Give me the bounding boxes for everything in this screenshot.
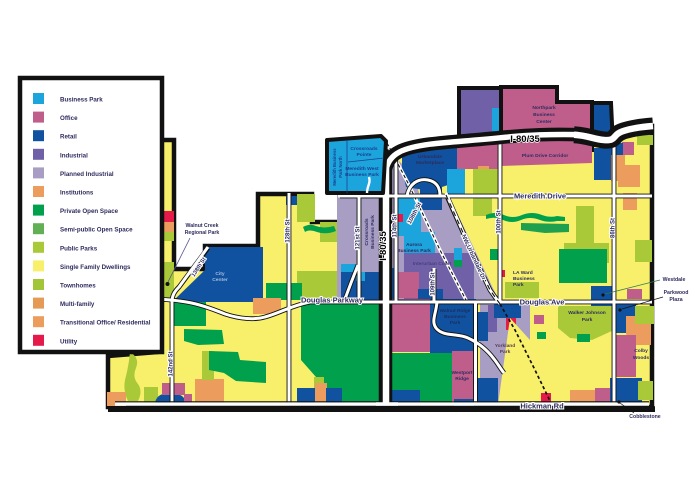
- svg-text:Institutions: Institutions: [60, 190, 94, 197]
- svg-text:Westdale: Westdale: [663, 277, 686, 283]
- svg-text:Plum Drive Corridor: Plum Drive Corridor: [522, 153, 569, 159]
- svg-text:Northpark: Northpark: [532, 105, 556, 111]
- svg-text:Douglas Ave: Douglas Ave: [520, 298, 565, 307]
- svg-text:Semi-public Open Space: Semi-public Open Space: [60, 227, 133, 234]
- svg-text:Park North: Park North: [338, 156, 343, 178]
- svg-text:Ridge: Ridge: [455, 376, 469, 382]
- svg-text:Douglas Parkway: Douglas Parkway: [301, 296, 364, 305]
- svg-text:Crossroads: Crossroads: [364, 218, 370, 245]
- svg-text:Public Parks: Public Parks: [60, 245, 98, 252]
- svg-text:Colby: Colby: [634, 348, 648, 354]
- svg-text:I-80/35: I-80/35: [510, 134, 540, 145]
- svg-text:City: City: [215, 271, 225, 277]
- svg-text:Park: Park: [582, 317, 593, 323]
- svg-text:Walnut Ridge: Walnut Ridge: [439, 308, 470, 314]
- svg-text:Crossroads: Crossroads: [350, 146, 377, 152]
- svg-text:Retail: Retail: [60, 134, 77, 141]
- svg-text:Multi-family: Multi-family: [60, 301, 95, 308]
- svg-text:Business Park: Business Park: [60, 97, 103, 104]
- svg-text:Meredith Drive: Meredith Drive: [514, 192, 566, 201]
- svg-text:Park: Park: [450, 320, 461, 326]
- svg-text:Center: Center: [212, 277, 228, 283]
- svg-text:Marketplace: Marketplace: [416, 160, 445, 166]
- svg-text:Meredith West: Meredith West: [345, 166, 379, 172]
- svg-text:LA Ward: LA Ward: [513, 270, 533, 276]
- svg-text:Cobblestone: Cobblestone: [629, 414, 661, 420]
- svg-text:100th St: 100th St: [497, 210, 503, 233]
- svg-text:Single Family Dwellings: Single Family Dwellings: [60, 264, 131, 271]
- svg-text:Business Park: Business Park: [397, 248, 431, 254]
- svg-text:Hickman Rd: Hickman Rd: [520, 402, 564, 411]
- svg-text:Business: Business: [533, 112, 555, 118]
- svg-text:Office: Office: [60, 115, 78, 122]
- svg-text:Pointe: Pointe: [357, 152, 372, 158]
- svg-text:86th St: 86th St: [611, 218, 617, 238]
- svg-text:Business Park: Business Park: [345, 172, 379, 178]
- svg-text:Townhomes: Townhomes: [60, 283, 96, 290]
- svg-text:128th St: 128th St: [286, 219, 292, 242]
- svg-text:Yorkland: Yorkland: [495, 343, 516, 349]
- svg-text:Industrial: Industrial: [60, 152, 88, 159]
- svg-text:Center: Center: [536, 119, 552, 125]
- svg-text:Aurora: Aurora: [406, 242, 422, 248]
- svg-text:Woods: Woods: [633, 355, 649, 361]
- svg-text:Transitional Office/ Residenti: Transitional Office/ Residential: [60, 320, 151, 327]
- svg-text:Plaza: Plaza: [669, 297, 682, 303]
- svg-text:Private Open Space: Private Open Space: [60, 208, 119, 215]
- svg-text:Regional Park: Regional Park: [185, 230, 220, 236]
- svg-text:Parkwood: Parkwood: [664, 290, 689, 296]
- svg-text:Business: Business: [513, 276, 535, 282]
- svg-text:Walker Johnson: Walker Johnson: [568, 310, 606, 316]
- svg-text:142nd St: 142nd St: [169, 351, 175, 376]
- svg-text:114th St: 114th St: [393, 214, 399, 237]
- svg-text:Westport: Westport: [451, 370, 472, 376]
- svg-text:Meredith Business: Meredith Business: [332, 148, 337, 186]
- svg-text:Walnut Creek: Walnut Creek: [186, 223, 219, 229]
- svg-text:Business Park: Business Park: [370, 215, 376, 249]
- svg-text:Interurban Court: Interurban Court: [413, 261, 452, 267]
- svg-text:I-80/35: I-80/35: [378, 230, 389, 260]
- svg-text:109th St: 109th St: [431, 272, 437, 295]
- svg-text:Planned Industrial: Planned Industrial: [60, 171, 114, 178]
- svg-text:Park: Park: [500, 349, 511, 355]
- svg-text:Urbandale: Urbandale: [418, 154, 442, 160]
- svg-text:Business: Business: [444, 314, 466, 320]
- svg-text:121st St: 121st St: [356, 226, 362, 249]
- svg-text:Park: Park: [513, 282, 524, 288]
- svg-text:Utility: Utility: [60, 338, 78, 345]
